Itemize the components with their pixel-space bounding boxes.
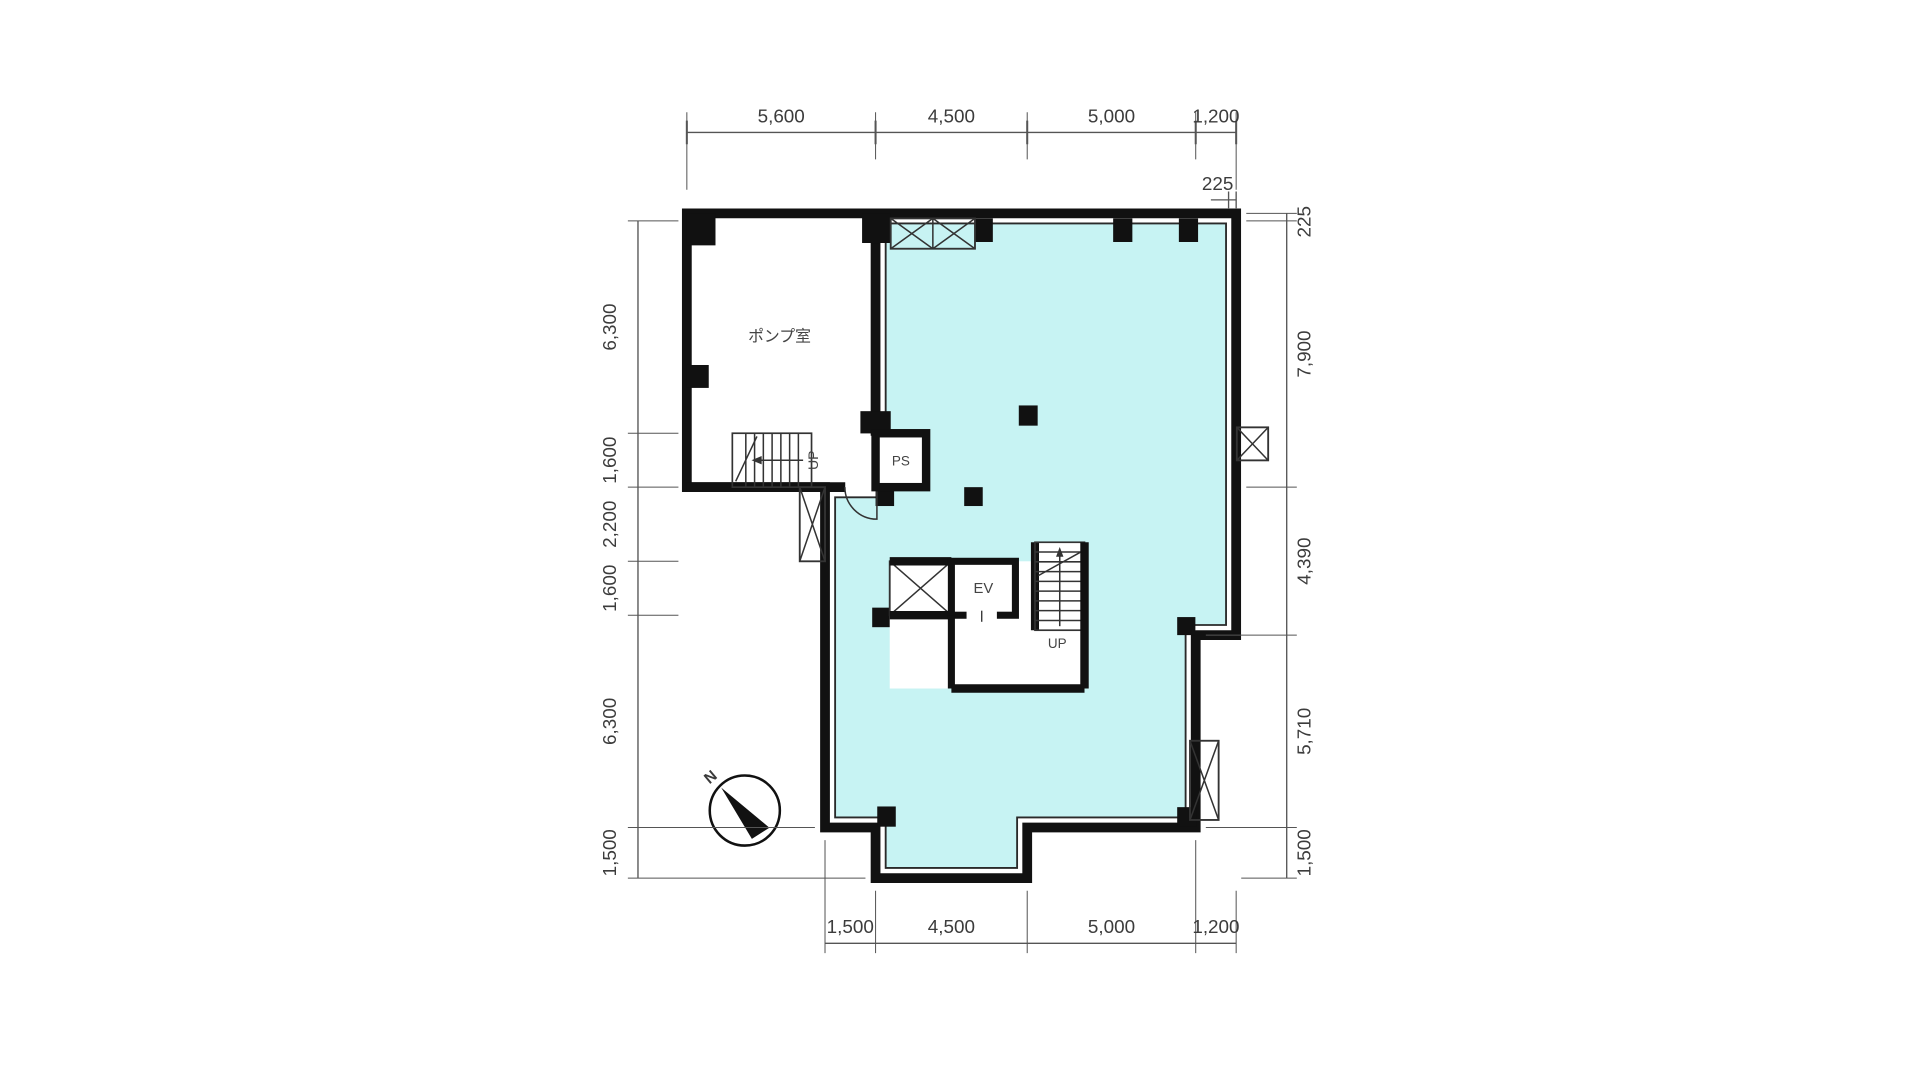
dim-left-4: 1,600 bbox=[599, 565, 620, 612]
column bbox=[1113, 218, 1132, 242]
main-stairs: UP bbox=[732, 433, 821, 487]
column bbox=[862, 213, 891, 243]
dim-bottom-4: 1,200 bbox=[1192, 916, 1239, 937]
north-label: N bbox=[701, 767, 721, 787]
column bbox=[975, 218, 993, 242]
column bbox=[1179, 218, 1198, 242]
dim-left-5: 6,300 bbox=[599, 698, 620, 745]
dim-bottom-1: 1,500 bbox=[827, 916, 874, 937]
column bbox=[687, 365, 709, 388]
ps-room-label: PS bbox=[892, 453, 910, 468]
core: EV UP bbox=[890, 542, 1085, 688]
elevator-shaft: EV bbox=[951, 561, 1015, 621]
ps-room: PS bbox=[876, 433, 927, 487]
core-stairs-up-label: UP bbox=[1048, 636, 1067, 651]
main-floor-area bbox=[835, 223, 1226, 868]
floor-plan-page: { "plan": { "type": "architectural-floor… bbox=[0, 0, 1920, 1080]
dim-right-2: 7,900 bbox=[1293, 330, 1314, 377]
stair-up-arrowhead bbox=[752, 456, 762, 464]
dim-left-1: 6,300 bbox=[599, 303, 620, 350]
right-upper-window bbox=[1237, 427, 1268, 460]
dim-top-1: 5,600 bbox=[758, 105, 805, 126]
dim-left-3: 2,200 bbox=[599, 501, 620, 548]
column bbox=[687, 213, 716, 245]
dim-top: 5,600 4,500 5,000 1,200 225 bbox=[687, 105, 1240, 208]
dim-bottom-2: 4,500 bbox=[928, 916, 975, 937]
floor-plan-drawing: UP PS EV bbox=[579, 92, 1344, 975]
dim-left-2: 1,600 bbox=[599, 437, 620, 484]
column bbox=[1177, 617, 1195, 635]
dim-right-1: 225 bbox=[1293, 206, 1314, 237]
dim-top-2: 4,500 bbox=[928, 105, 975, 126]
dim-top-offset: 225 bbox=[1202, 173, 1233, 194]
dim-top-3: 5,000 bbox=[1088, 105, 1135, 126]
column bbox=[1019, 405, 1038, 425]
dim-top-4: 1,200 bbox=[1192, 105, 1239, 126]
column bbox=[964, 487, 983, 506]
stairs-up-label: UP bbox=[805, 450, 821, 470]
dim-right-5: 1,500 bbox=[1293, 829, 1314, 876]
dim-bottom-3: 5,000 bbox=[1088, 916, 1135, 937]
dim-right-4: 5,710 bbox=[1293, 708, 1314, 755]
dim-right-3: 4,390 bbox=[1293, 538, 1314, 585]
dim-left-6: 1,500 bbox=[599, 829, 620, 876]
column bbox=[877, 806, 896, 826]
pump-room-label: ポンプ室 bbox=[748, 327, 811, 345]
elevator-label: EV bbox=[974, 581, 994, 597]
north-arrow: N bbox=[701, 767, 780, 845]
north-arrow-needle bbox=[721, 788, 769, 839]
